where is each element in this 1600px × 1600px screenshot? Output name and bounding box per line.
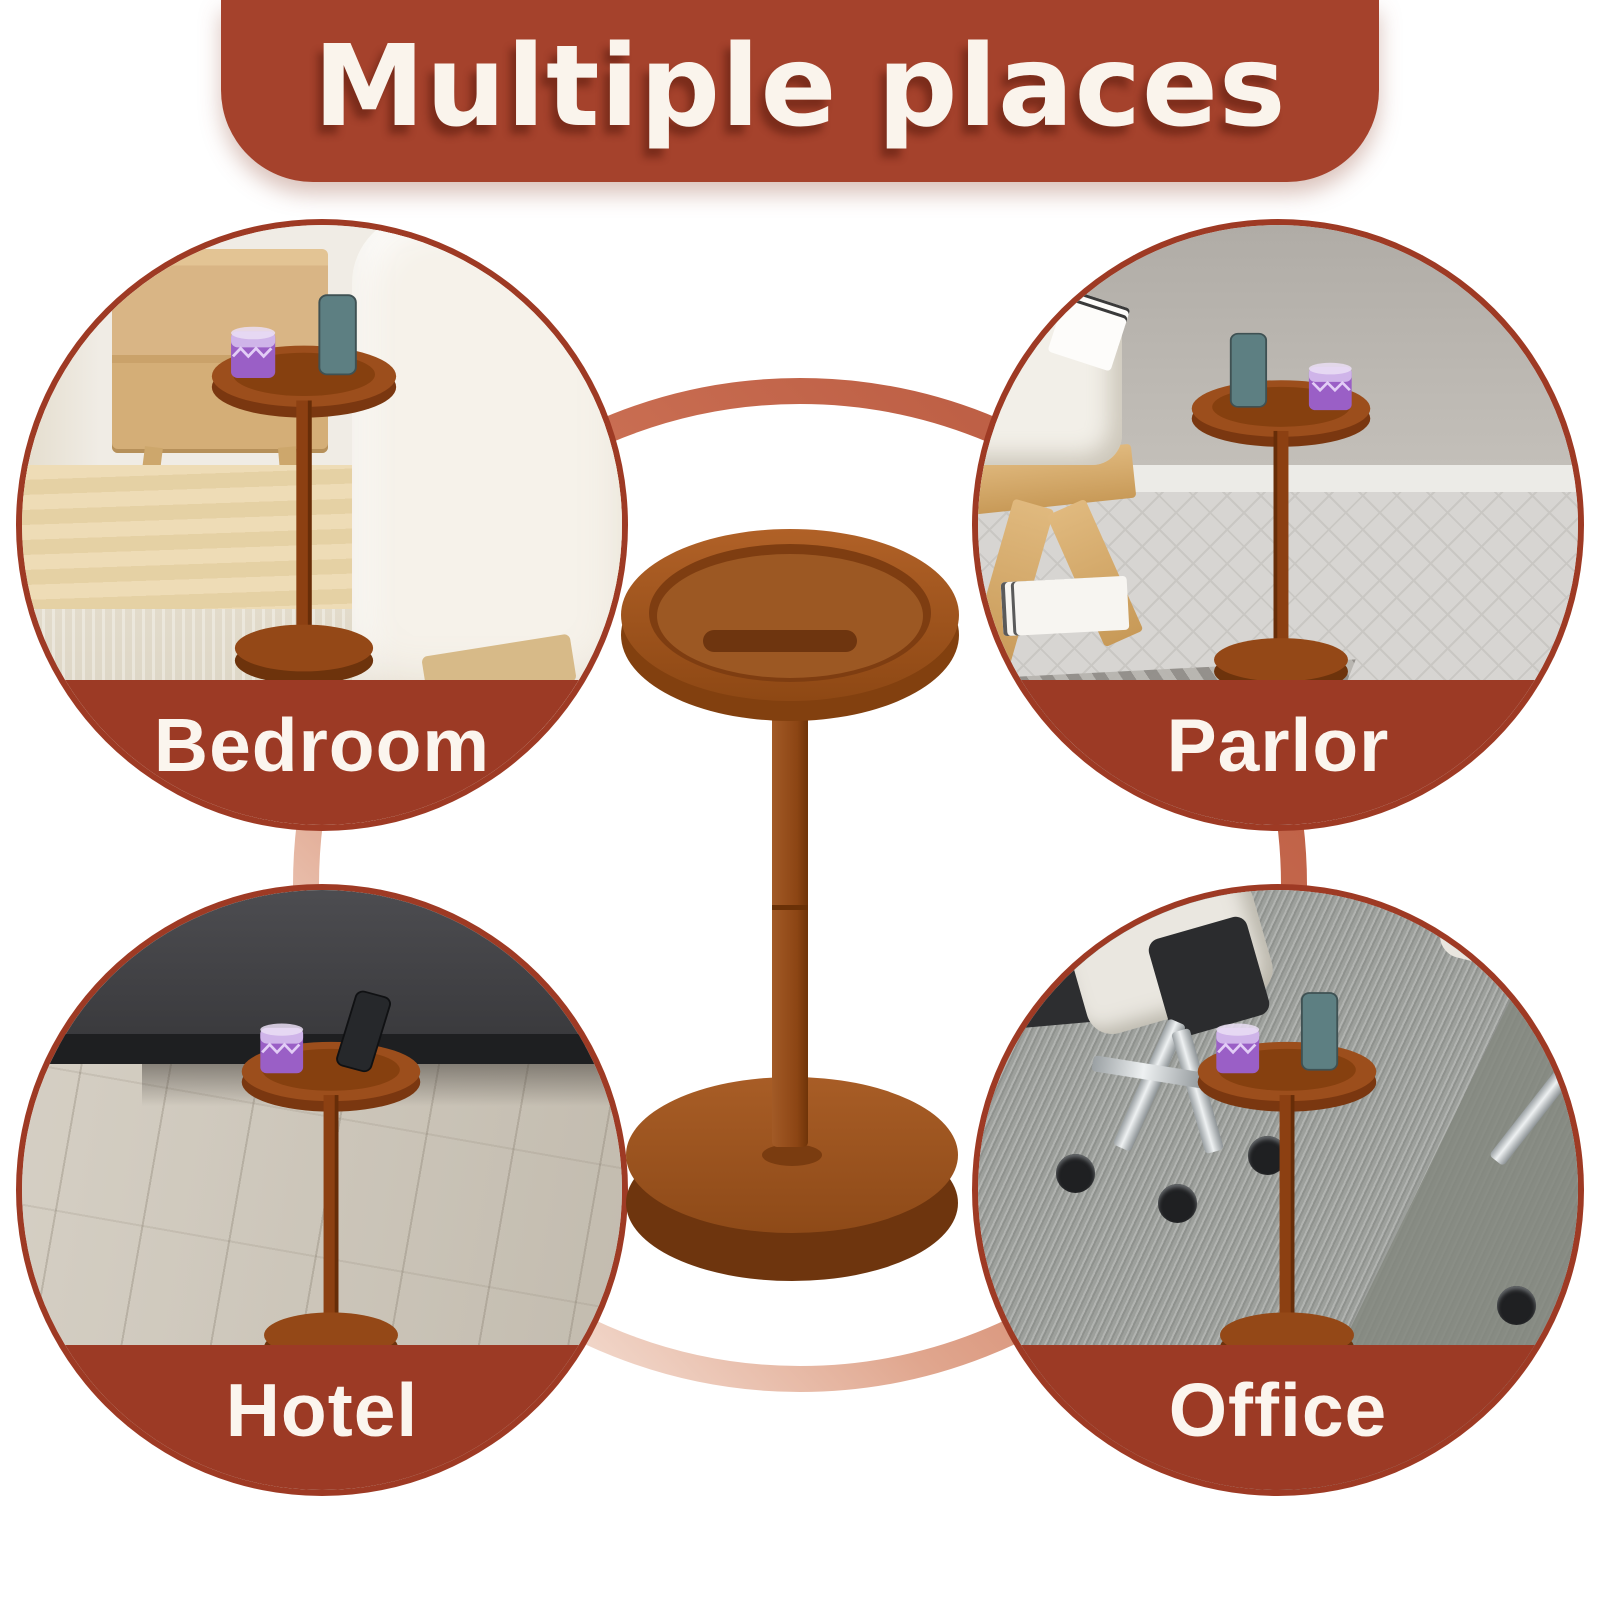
scene-circle-parlor: Parlor bbox=[978, 225, 1578, 825]
purple-drink-glass-icon bbox=[1216, 1024, 1259, 1074]
scene-circle-bedroom: Bedroom bbox=[22, 225, 622, 825]
drink-table-hotel bbox=[238, 986, 424, 1370]
product-tray bbox=[621, 529, 959, 721]
office-label-chord: Office bbox=[978, 1345, 1578, 1490]
hotel-label-chord: Hotel bbox=[22, 1345, 622, 1490]
office-chair-wheel bbox=[1056, 1154, 1095, 1193]
parlor-towel bbox=[1001, 576, 1130, 637]
product-image-drink-table bbox=[600, 515, 990, 1285]
drink-table-parlor bbox=[1188, 327, 1374, 693]
bedroom-label-chord: Bedroom bbox=[22, 680, 622, 825]
hotel-label: Hotel bbox=[226, 1367, 419, 1453]
scene-circle-office: Office bbox=[978, 890, 1578, 1490]
smartphone-icon bbox=[1231, 334, 1266, 407]
office-label: Office bbox=[1169, 1367, 1388, 1453]
product-phone-slot bbox=[703, 630, 857, 652]
office-chair-wheel bbox=[1158, 1184, 1197, 1223]
purple-drink-glass-icon bbox=[260, 1024, 303, 1074]
parlor-label: Parlor bbox=[1167, 702, 1390, 788]
title-banner: Multiple places bbox=[221, 0, 1379, 182]
smartphone-icon bbox=[1302, 993, 1337, 1070]
product-collage: Bedroom bbox=[0, 0, 1600, 1600]
drink-table-bedroom bbox=[208, 288, 400, 684]
purple-drink-glass-icon bbox=[1309, 363, 1352, 410]
drink-table-office bbox=[1194, 986, 1380, 1370]
bedroom-label: Bedroom bbox=[154, 702, 490, 788]
purple-drink-glass-icon bbox=[231, 327, 275, 378]
smartphone-icon bbox=[319, 295, 355, 374]
parlor-label-chord: Parlor bbox=[978, 680, 1578, 825]
page-title: Multiple places bbox=[313, 22, 1286, 160]
scene-circle-hotel: Hotel bbox=[22, 890, 622, 1490]
product-stem bbox=[772, 687, 808, 1147]
bedroom-curtain bbox=[22, 225, 100, 501]
office-chair-wheel bbox=[1497, 1286, 1536, 1325]
